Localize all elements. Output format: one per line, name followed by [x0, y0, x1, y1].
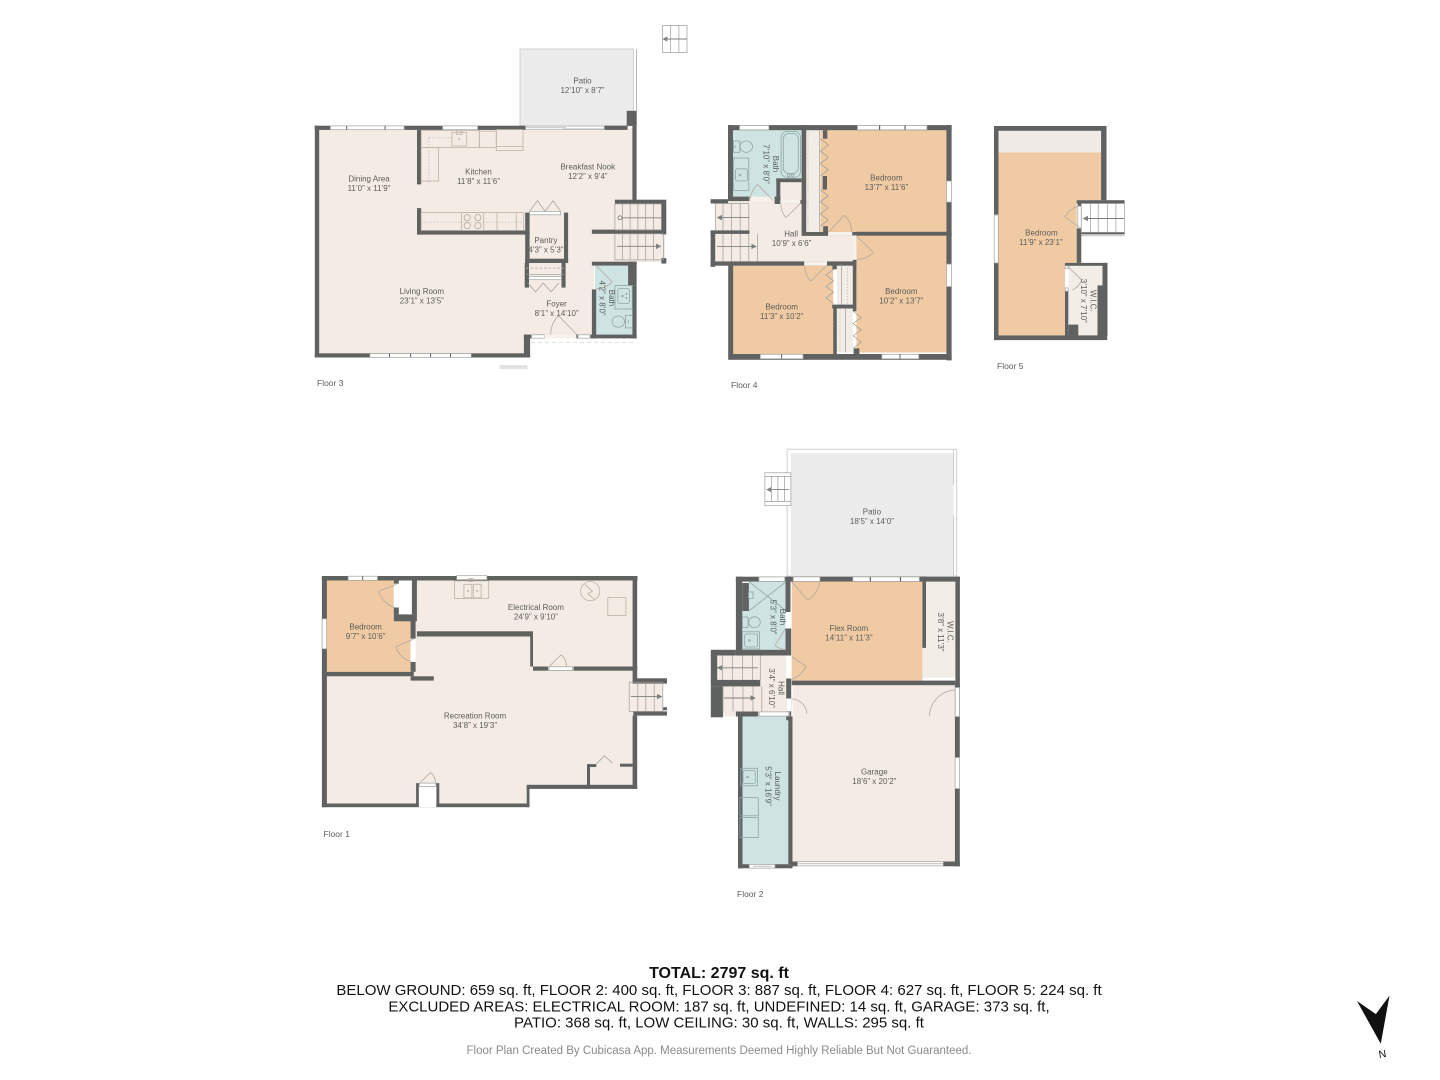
svg-text:Floor 2: Floor 2	[737, 889, 764, 899]
svg-text:3’10” x 7’10”: 3’10” x 7’10”	[1079, 279, 1088, 323]
svg-text:Pantry: Pantry	[534, 236, 557, 245]
svg-text:9’7” x 10’6”: 9’7” x 10’6”	[346, 632, 386, 641]
svg-text:Floor 5: Floor 5	[997, 361, 1024, 371]
svg-text:5’3” x 8’0”: 5’3” x 8’0”	[768, 599, 777, 634]
svg-text:Bedroom: Bedroom	[765, 303, 798, 312]
svg-text:8’1” x 14’10”: 8’1” x 14’10”	[535, 309, 579, 318]
svg-text:Dining Area: Dining Area	[348, 175, 390, 184]
svg-text:18’6” x 20’2”: 18’6” x 20’2”	[852, 777, 896, 786]
svg-text:7’10” x 8’0”: 7’10” x 8’0”	[761, 144, 770, 184]
svg-text:Patio: Patio	[573, 77, 592, 86]
svg-text:Breakfast Nook: Breakfast Nook	[560, 163, 616, 172]
svg-text:EXCLUDED AREAS: ELECTRICAL ROO: EXCLUDED AREAS: ELECTRICAL ROOM: 187 sq.…	[388, 999, 1049, 1016]
svg-text:5’3” x 16’9”: 5’3” x 16’9”	[764, 766, 773, 806]
svg-text:Hall: Hall	[784, 230, 798, 239]
svg-text:4’2” x 8’0”: 4’2” x 8’0”	[598, 280, 607, 315]
svg-text:10’9” x 6’6”: 10’9” x 6’6”	[772, 239, 812, 248]
svg-text:14’11” x 11’3”: 14’11” x 11’3”	[825, 634, 873, 643]
svg-text:Bedroom: Bedroom	[870, 174, 903, 183]
svg-text:Bedroom: Bedroom	[349, 623, 382, 632]
svg-text:10’2” x 13’7”: 10’2” x 13’7”	[879, 297, 923, 306]
svg-text:13’7” x 11’6”: 13’7” x 11’6”	[865, 183, 909, 192]
svg-text:11’0” x 11’9”: 11’0” x 11’9”	[348, 184, 391, 193]
svg-text:Living Room: Living Room	[400, 287, 445, 296]
svg-text:11’3” x 10’2”: 11’3” x 10’2”	[760, 312, 804, 321]
svg-text:Garage: Garage	[861, 768, 888, 777]
svg-text:34’8” x 19’3”: 34’8” x 19’3”	[453, 721, 497, 730]
svg-text:18’5” x 14’0”: 18’5” x 14’0”	[850, 517, 894, 526]
svg-text:23’1” x 13’5”: 23’1” x 13’5”	[400, 297, 444, 306]
svg-text:3’4” x 6’10”: 3’4” x 6’10”	[767, 668, 776, 708]
svg-text:Laundry: Laundry	[773, 772, 782, 801]
svg-text:TOTAL: 2797 sq. ft: TOTAL: 2797 sq. ft	[649, 965, 790, 982]
svg-text:BELOW GROUND: 659 sq. ft, FLOO: BELOW GROUND: 659 sq. ft, FLOOR 2: 400 s…	[336, 982, 1102, 999]
svg-text:Kitchen: Kitchen	[465, 168, 492, 177]
svg-text:Floor Plan Created By Cubicasa: Floor Plan Created By Cubicasa App. Meas…	[467, 1045, 972, 1057]
svg-text:PATIO: 368 sq. ft, LOW CEILING: PATIO: 368 sq. ft, LOW CEILING: 30 sq. f…	[514, 1015, 925, 1032]
svg-text:Floor 4: Floor 4	[731, 380, 758, 390]
svg-text:W.I.C.: W.I.C.	[1089, 290, 1098, 312]
svg-text:4’3” x 5’3”: 4’3” x 5’3”	[528, 246, 563, 255]
svg-text:Bedroom: Bedroom	[885, 287, 918, 296]
svg-text:Electrical Room: Electrical Room	[508, 603, 564, 612]
svg-text:Foyer: Foyer	[546, 300, 567, 309]
svg-text:Patio: Patio	[863, 508, 882, 517]
svg-text:Flex Room: Flex Room	[830, 624, 869, 633]
svg-text:Bath: Bath	[778, 609, 787, 625]
svg-text:3’8” x 11’3”: 3’8” x 11’3”	[936, 613, 945, 652]
svg-text:Recreation Room: Recreation Room	[444, 712, 507, 721]
svg-text:Bath: Bath	[607, 290, 616, 306]
svg-text:Bath: Bath	[771, 156, 780, 172]
svg-text:Floor 3: Floor 3	[317, 378, 344, 388]
svg-text:Bedroom: Bedroom	[1025, 229, 1058, 238]
svg-text:12’10” x 8’7”: 12’10” x 8’7”	[560, 86, 604, 95]
svg-text:24’9” x 9’10”: 24’9” x 9’10”	[514, 613, 558, 622]
svg-text:Hall: Hall	[777, 681, 786, 695]
svg-text:11’9” x 23’1”: 11’9” x 23’1”	[1019, 238, 1063, 247]
svg-text:Floor 1: Floor 1	[324, 829, 351, 839]
svg-text:W.I.C.: W.I.C.	[946, 621, 955, 643]
svg-text:11’8” x 11’6”: 11’8” x 11’6”	[457, 177, 500, 186]
svg-text:12’2” x 9’4”: 12’2” x 9’4”	[568, 172, 608, 181]
